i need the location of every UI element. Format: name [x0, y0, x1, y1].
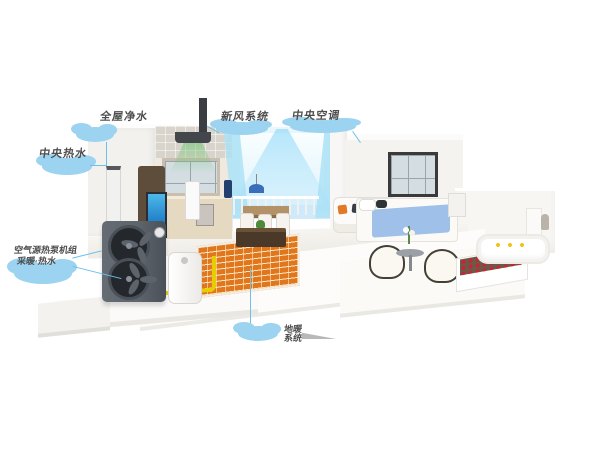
softener-appliance — [185, 181, 200, 220]
fresh-air-ceiling-unit — [175, 132, 211, 143]
bath-ducks — [492, 242, 526, 248]
callout-label-central-ac: 中央空调 — [291, 111, 341, 122]
callout-label-hot-water: 中央热水 — [38, 149, 88, 160]
callout-label-heat-pump-line1: 空气源热泵机组 — [13, 245, 77, 255]
callout-label-fresh-air: 新风系统 — [220, 112, 270, 123]
pointer-water-purifier — [106, 142, 107, 166]
brand-badge — [154, 227, 165, 238]
terrace-chair-right — [424, 249, 460, 283]
home-system-illustration: 全屋净水 新风系统 中央空调 中央热水 空气源热泵机组 采暖·热水 地暖 系统 — [0, 0, 600, 450]
bedroom-window — [388, 152, 438, 197]
pointer-hot-water — [90, 165, 107, 166]
callout-cloud-fresh-air — [216, 122, 268, 135]
water-purifier-tower — [106, 166, 121, 223]
coffee-table-plant — [256, 220, 265, 228]
vase-flowers — [402, 226, 416, 244]
bathtub — [476, 234, 550, 264]
callout-label-water-purifier: 全屋净水 — [99, 112, 149, 123]
counter-purifier-blue — [224, 180, 232, 198]
heat-pump-unit — [102, 221, 166, 302]
buffer-tank — [168, 252, 202, 304]
pendant-lamp — [249, 184, 264, 193]
callout-cloud-water-purifier — [76, 127, 114, 142]
cat-figure — [541, 214, 549, 230]
callout-label-floor-heating-line2: 系统 — [283, 333, 302, 343]
bed-pillow-dark — [376, 200, 387, 208]
sofa-pillow-orange — [337, 204, 347, 214]
nightstand — [448, 193, 466, 217]
fresh-air-duct — [199, 98, 207, 136]
tank-cap — [181, 257, 188, 264]
fan-icon — [108, 258, 150, 300]
coffee-table — [236, 228, 286, 247]
callout-cloud-floor-heating — [238, 326, 278, 341]
callout-cloud-hot-water — [42, 158, 92, 175]
callout-label-heat-pump-line2: 采暖·热水 — [16, 256, 56, 266]
bed-pillow — [359, 199, 376, 211]
label-swoosh — [302, 330, 336, 339]
pointer-floor-heating — [250, 268, 251, 326]
terrace-table-stem — [409, 255, 412, 271]
platform-step — [38, 296, 110, 334]
callout-cloud-heat-pump — [14, 263, 72, 284]
